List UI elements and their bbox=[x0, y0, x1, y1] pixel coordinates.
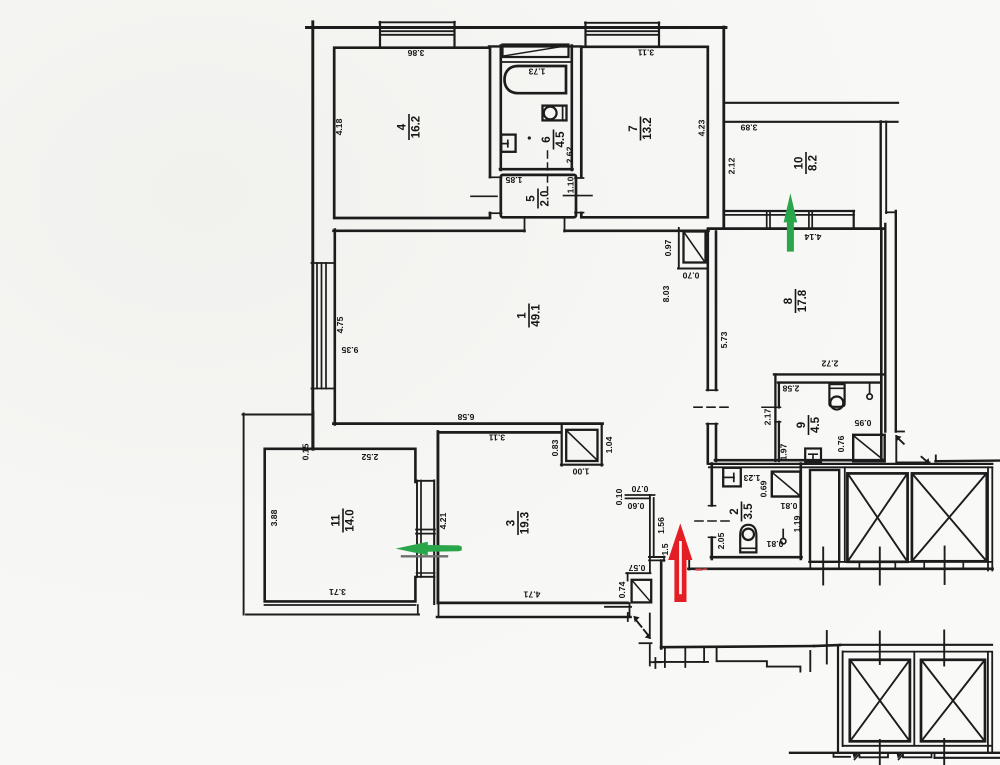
svg-text:1.85: 1.85 bbox=[505, 175, 522, 185]
svg-text:0.76: 0.76 bbox=[836, 435, 846, 452]
svg-text:17.8: 17.8 bbox=[797, 289, 809, 312]
svg-text:8: 8 bbox=[783, 297, 795, 304]
svg-text:4.75: 4.75 bbox=[335, 316, 345, 333]
svg-text:0.97: 0.97 bbox=[663, 239, 673, 256]
svg-text:2.58: 2.58 bbox=[782, 384, 799, 394]
svg-text:4.71: 4.71 bbox=[523, 590, 540, 600]
svg-text:3.88: 3.88 bbox=[269, 509, 279, 526]
svg-text:0.70: 0.70 bbox=[682, 271, 699, 281]
svg-text:4.14: 4.14 bbox=[804, 232, 821, 242]
svg-text:14.0: 14.0 bbox=[345, 509, 357, 531]
svg-text:0.83: 0.83 bbox=[550, 439, 560, 456]
svg-text:2.52: 2.52 bbox=[361, 452, 378, 462]
svg-text:1.5: 1.5 bbox=[660, 543, 670, 555]
svg-text:16.2: 16.2 bbox=[411, 116, 423, 138]
svg-text:3.11: 3.11 bbox=[489, 433, 505, 443]
svg-text:0.81: 0.81 bbox=[766, 539, 783, 549]
svg-text:2.17: 2.17 bbox=[763, 408, 773, 425]
svg-text:5.73: 5.73 bbox=[719, 331, 729, 348]
svg-text:0.74: 0.74 bbox=[617, 581, 627, 598]
svg-text:4.23: 4.23 bbox=[697, 119, 707, 136]
svg-text:1.00: 1.00 bbox=[572, 467, 589, 477]
svg-text:0.60: 0.60 bbox=[627, 501, 644, 511]
svg-text:1.97: 1.97 bbox=[779, 443, 789, 460]
svg-text:9: 9 bbox=[796, 422, 808, 428]
svg-text:3.71: 3.71 bbox=[329, 587, 346, 597]
svg-text:0.95: 0.95 bbox=[854, 418, 871, 428]
svg-text:0.57: 0.57 bbox=[628, 563, 645, 573]
svg-text:10: 10 bbox=[794, 157, 806, 170]
svg-text:2.72: 2.72 bbox=[821, 359, 838, 369]
svg-text:0.69: 0.69 bbox=[759, 480, 769, 497]
svg-text:1.04: 1.04 bbox=[604, 436, 614, 453]
svg-text:1: 1 bbox=[517, 312, 529, 319]
svg-text:0.81: 0.81 bbox=[780, 501, 797, 511]
svg-text:2.0: 2.0 bbox=[540, 191, 552, 207]
svg-text:1.10: 1.10 bbox=[566, 176, 576, 193]
svg-text:2: 2 bbox=[729, 508, 741, 514]
svg-text:1.56: 1.56 bbox=[656, 517, 666, 534]
svg-text:19.3: 19.3 bbox=[520, 512, 532, 534]
svg-text:2.12: 2.12 bbox=[727, 157, 737, 174]
svg-text:2.62: 2.62 bbox=[565, 146, 575, 163]
svg-text:0.10: 0.10 bbox=[614, 488, 624, 505]
svg-text:1.73: 1.73 bbox=[528, 67, 545, 77]
svg-text:4.5: 4.5 bbox=[555, 131, 567, 148]
svg-text:8.03: 8.03 bbox=[661, 285, 671, 302]
svg-text:11: 11 bbox=[331, 514, 343, 527]
svg-text:4.5: 4.5 bbox=[810, 416, 822, 433]
svg-text:3: 3 bbox=[506, 520, 518, 526]
svg-text:6.58: 6.58 bbox=[457, 412, 474, 422]
svg-text:4.18: 4.18 bbox=[334, 118, 344, 135]
svg-text:7: 7 bbox=[628, 125, 640, 131]
svg-text:3.11: 3.11 bbox=[638, 48, 654, 58]
svg-text:3.86: 3.86 bbox=[407, 48, 424, 58]
svg-text:0.70: 0.70 bbox=[631, 484, 648, 494]
svg-text:8.2: 8.2 bbox=[808, 155, 820, 171]
svg-text:5: 5 bbox=[526, 195, 538, 202]
svg-text:4.21: 4.21 bbox=[438, 512, 448, 529]
svg-text:3.5: 3.5 bbox=[743, 503, 755, 520]
svg-text:2.05: 2.05 bbox=[716, 532, 726, 549]
svg-text:0.15: 0.15 bbox=[301, 443, 311, 460]
svg-text:49.1: 49.1 bbox=[531, 304, 543, 327]
svg-text:3.89: 3.89 bbox=[740, 123, 757, 133]
svg-text:4: 4 bbox=[397, 123, 409, 130]
svg-text:1.19: 1.19 bbox=[792, 515, 802, 532]
svg-text:6: 6 bbox=[541, 136, 553, 142]
svg-text:13.2: 13.2 bbox=[642, 117, 654, 139]
svg-text:9.35: 9.35 bbox=[341, 345, 358, 355]
